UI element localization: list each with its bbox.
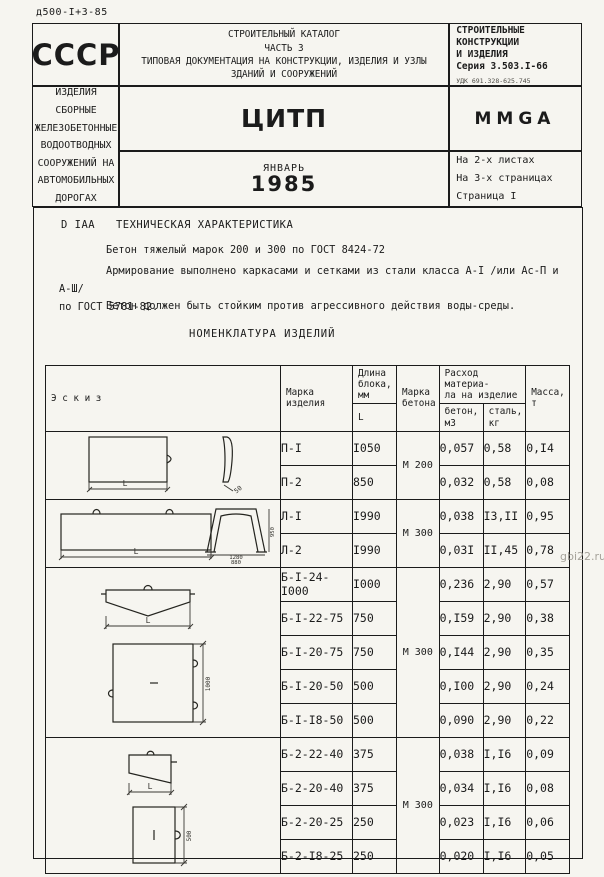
doc-number: д500-I+3-85: [36, 7, 108, 18]
series-line3: И ИЗДЕЛИЯ: [456, 49, 507, 61]
series-line1: СТРОИТЕЛЬНЫЕ: [456, 25, 525, 37]
svg-text:L: L: [147, 782, 152, 791]
steel-cell: I,I6: [483, 771, 526, 805]
tech-paragraph-3: Бетон должен быть стойким против агресси…: [106, 300, 515, 312]
concrete-grade-cell: М 300: [397, 737, 440, 873]
svg-text:950: 950: [270, 527, 276, 537]
svg-text:880: 880: [230, 560, 240, 564]
mark-cell: Б-2-20-25: [281, 805, 353, 839]
col-header-beton-sub: бетон, м3: [439, 404, 483, 431]
stamp-cell: MMGA: [448, 85, 582, 152]
sketch-b1-block-drawing: L 1000: [51, 572, 276, 732]
mass-cell: 0,22: [526, 703, 570, 737]
mass-cell: 0,24: [526, 669, 570, 703]
svg-text:1000: 1000: [205, 677, 212, 692]
table-row: L 500 Б-2-22-40 375 М 300 0,038 I,I6 0,0…: [46, 737, 570, 771]
mark-cell: П-I: [281, 431, 353, 465]
sketch-l-trough-cell: L 1280 880 950: [46, 499, 281, 567]
table-row: L 50 П-I I050 М 200 0,057 0,58 0,I4: [46, 431, 570, 465]
col-header-consumption: Расход материа- ла на изделие: [439, 366, 526, 404]
length-cell: 500: [353, 669, 397, 703]
beton-cell: 0,020: [439, 839, 483, 873]
sketch-p-plate-drawing: L 50: [51, 434, 276, 496]
org-ussr-cell: СССР: [32, 23, 120, 87]
mass-cell: 0,05: [526, 839, 570, 873]
beton-cell: 0,I00: [439, 669, 483, 703]
subject-line1: ИЗДЕЛИЯ СБОРНЫЕ ЖЕЛЕЗОБЕТОННЫЕ ВОДООТВОД…: [33, 85, 119, 155]
svg-text:L: L: [122, 479, 127, 488]
mark-cell: Б-I-22-75: [281, 601, 353, 635]
catalog-line4: ЗДАНИЙ И СООРУЖЕНИЙ: [231, 68, 337, 81]
beton-cell: 0,090: [439, 703, 483, 737]
mass-cell: 0,09: [526, 737, 570, 771]
org-citp-label: ЦИТП: [241, 104, 327, 133]
sheets-line2: На 3-х страницах: [456, 170, 552, 188]
mass-cell: 0,08: [526, 771, 570, 805]
beton-cell: 0,034: [439, 771, 483, 805]
col-header-concrete: Марка бетона: [397, 366, 440, 432]
length-cell: 375: [353, 771, 397, 805]
catalog-line1: СТРОИТЕЛЬНЫЙ КАТАЛОГ: [228, 28, 340, 41]
length-cell: 850: [353, 465, 397, 499]
length-cell: 250: [353, 839, 397, 873]
steel-cell: 2,90: [483, 703, 526, 737]
tech-section-title: ТЕХНИЧЕСКАЯ ХАРАКТЕРИСТИКА: [116, 219, 293, 231]
issue-year: 1985: [251, 174, 317, 195]
length-cell: I990: [353, 533, 397, 567]
col-header-mass: Масса, т: [526, 366, 570, 432]
steel-cell: II,45: [483, 533, 526, 567]
concrete-grade-cell: М 200: [397, 431, 440, 499]
length-cell: 375: [353, 737, 397, 771]
steel-cell: 2,90: [483, 567, 526, 601]
beton-cell: 0,I44: [439, 635, 483, 669]
mark-cell: Б-I-20-50: [281, 669, 353, 703]
concrete-grade-cell: М 300: [397, 567, 440, 737]
sheets-line3: Страница I: [456, 188, 516, 206]
mark-cell: Б-2-22-40: [281, 737, 353, 771]
col-header-length-sub: L: [353, 404, 397, 431]
watermark: gbi22.ru: [560, 550, 604, 563]
table-row: L 1000 Б-I-24-I000 I000 М 300 0,236 2,90…: [46, 567, 570, 601]
mass-cell: 0,38: [526, 601, 570, 635]
steel-cell: 2,90: [483, 635, 526, 669]
beton-cell: 0,057: [439, 431, 483, 465]
length-cell: 500: [353, 703, 397, 737]
series-cell: СТРОИТЕЛЬНЫЕ КОНСТРУКЦИИ И ИЗДЕЛИЯ Серия…: [448, 23, 582, 87]
tech-section-code: D IAA: [61, 219, 95, 231]
length-cell: I990: [353, 499, 397, 533]
sheets-cell: На 2-х листах На 3-х страницах Страница …: [448, 150, 582, 207]
svg-text:50: 50: [232, 484, 243, 495]
concrete-grade-cell: М 300: [397, 499, 440, 567]
org-ussr-label: СССР: [32, 38, 120, 72]
col-header-sketch: Э с к и з: [46, 366, 281, 432]
mark-cell: Б-I-24-I000: [281, 567, 353, 601]
steel-cell: 2,90: [483, 601, 526, 635]
mass-cell: 0,06: [526, 805, 570, 839]
mark-cell: Б-2-I8-25: [281, 839, 353, 873]
mass-cell: 0,57: [526, 567, 570, 601]
sketch-b1-block-cell: L 1000: [46, 567, 281, 737]
length-cell: 750: [353, 601, 397, 635]
steel-cell: I,I6: [483, 737, 526, 771]
table-row: L 1280 880 950 Л-I I990 М 300: [46, 499, 570, 533]
title-block: СССР СТРОИТЕЛЬНЫЙ КАТАЛОГ ЧАСТЬ 3 ТИПОВА…: [33, 24, 581, 206]
org-citp-cell: ЦИТП: [118, 85, 450, 152]
steel-cell: I3,II: [483, 499, 526, 533]
mark-cell: П-2: [281, 465, 353, 499]
sketch-p-plate-cell: L 50: [46, 431, 281, 499]
beton-cell: 0,I59: [439, 601, 483, 635]
steel-cell: 2,90: [483, 669, 526, 703]
steel-cell: 0,58: [483, 431, 526, 465]
sheets-line1: На 2-х листах: [456, 152, 534, 170]
mark-cell: Б-I-I8-50: [281, 703, 353, 737]
catalog-line3: ТИПОВАЯ ДОКУМЕНТАЦИЯ НА КОНСТРУКЦИИ, ИЗД…: [141, 55, 426, 68]
catalog-line2: ЧАСТЬ 3: [264, 42, 303, 55]
beton-cell: 0,03I: [439, 533, 483, 567]
beton-cell: 0,023: [439, 805, 483, 839]
length-cell: 750: [353, 635, 397, 669]
series-number: Серия 3.503.I-66: [456, 61, 548, 73]
mark-cell: Л-I: [281, 499, 353, 533]
sketch-b2-block-drawing: L 500: [51, 741, 276, 869]
svg-text:L: L: [145, 616, 150, 625]
subject-cell: ИЗДЕЛИЯ СБОРНЫЕ ЖЕЛЕЗОБЕТОННЫЕ ВОДООТВОД…: [32, 85, 120, 207]
svg-text:L: L: [133, 547, 138, 556]
steel-cell: I,I6: [483, 805, 526, 839]
length-cell: 250: [353, 805, 397, 839]
col-header-length: Длина блока, мм: [353, 366, 397, 404]
mark-cell: Б-I-20-75: [281, 635, 353, 669]
steel-cell: I,I6: [483, 839, 526, 873]
sketch-b2-block-cell: L 500: [46, 737, 281, 873]
series-line2: КОНСТРУКЦИИ: [456, 37, 519, 49]
date-cell: ЯНВАРЬ 1985: [118, 150, 450, 207]
length-cell: I000: [353, 567, 397, 601]
col-header-mark: Марка изделия: [281, 366, 353, 432]
beton-cell: 0,038: [439, 499, 483, 533]
document-page: д500-I+3-85 СССР СТРОИТЕЛЬНЫЙ КАТАЛОГ ЧА…: [0, 0, 604, 877]
beton-cell: 0,236: [439, 567, 483, 601]
svg-text:500: 500: [186, 830, 193, 841]
mass-cell: 0,35: [526, 635, 570, 669]
nomenclature-title: НОМЕНКЛАТУРА ИЗДЕЛИЙ: [189, 328, 335, 340]
beton-cell: 0,032: [439, 465, 483, 499]
udk-number: УДК 691.328-625.745: [456, 77, 530, 85]
mass-cell: 0,95: [526, 499, 570, 533]
col-header-steel-sub: сталь, кг: [483, 404, 526, 431]
steel-cell: 0,58: [483, 465, 526, 499]
sketch-l-trough-drawing: L 1280 880 950: [51, 502, 276, 564]
nomenclature-table: Э с к и з Марка изделия Длина блока, мм …: [45, 365, 570, 874]
mark-cell: Л-2: [281, 533, 353, 567]
stamp-label: MMGA: [475, 109, 556, 129]
length-cell: I050: [353, 431, 397, 465]
mark-cell: Б-2-20-40: [281, 771, 353, 805]
subject-line2: СООРУЖЕНИЙ НА АВТОМОБИЛЬНЫХ ДОРОГАХ: [33, 155, 119, 207]
beton-cell: 0,038: [439, 737, 483, 771]
tech-paragraph-1: Бетон тяжелый марок 200 и 300 по ГОСТ 84…: [106, 244, 385, 256]
mass-cell: 0,I4: [526, 431, 570, 465]
content-frame: D IAA ТЕХНИЧЕСКАЯ ХАРАКТЕРИСТИКА Бетон т…: [33, 207, 583, 859]
catalog-title-cell: СТРОИТЕЛЬНЫЙ КАТАЛОГ ЧАСТЬ 3 ТИПОВАЯ ДОК…: [118, 23, 450, 87]
mass-cell: 0,08: [526, 465, 570, 499]
tech-section-heading: D IAA ТЕХНИЧЕСКАЯ ХАРАКТЕРИСТИКА: [61, 219, 293, 231]
